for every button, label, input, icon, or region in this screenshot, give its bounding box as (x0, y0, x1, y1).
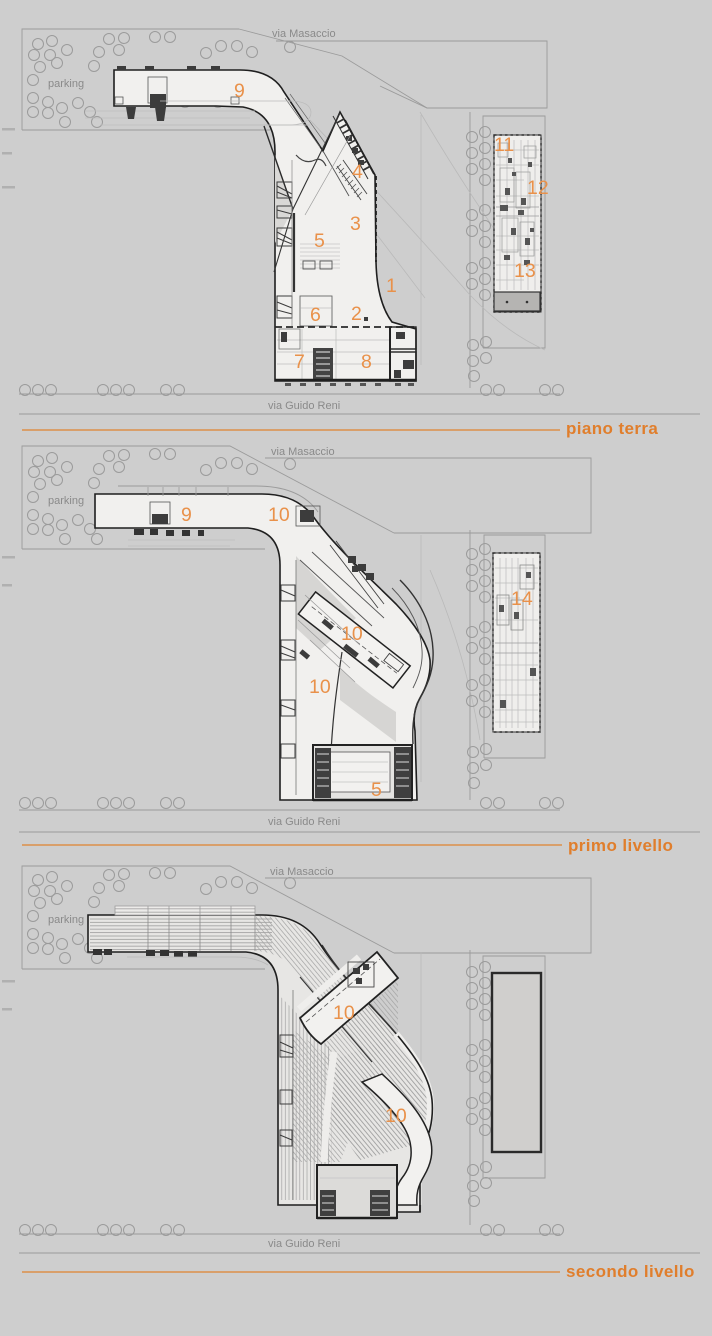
svg-text:via Masaccio: via Masaccio (272, 28, 336, 40)
svg-text:8: 8 (361, 351, 372, 373)
svg-text:2: 2 (351, 303, 362, 325)
svg-text:primo livello: primo livello (568, 836, 673, 855)
svg-text:9: 9 (181, 504, 192, 526)
svg-text:3: 3 (350, 213, 361, 235)
svg-text:via Guido Reni: via Guido Reni (268, 400, 340, 412)
svg-text:1: 1 (386, 275, 397, 297)
svg-text:via Guido Reni: via Guido Reni (268, 816, 340, 828)
svg-text:via Masaccio: via Masaccio (271, 446, 335, 458)
svg-text:5: 5 (314, 230, 325, 252)
svg-text:parking: parking (48, 914, 84, 926)
svg-text:10: 10 (268, 504, 290, 526)
svg-text:7: 7 (294, 351, 305, 373)
svg-text:9: 9 (234, 80, 245, 102)
svg-text:10: 10 (341, 623, 363, 645)
svg-text:5: 5 (371, 779, 382, 801)
svg-text:secondo livello: secondo livello (566, 1262, 695, 1281)
svg-text:via Masaccio: via Masaccio (270, 866, 334, 878)
svg-text:11: 11 (494, 134, 514, 156)
svg-text:via Guido Reni: via Guido Reni (268, 1238, 340, 1250)
svg-text:10: 10 (385, 1105, 407, 1127)
svg-text:piano terra: piano terra (566, 419, 658, 438)
svg-text:10: 10 (309, 676, 331, 698)
svg-text:6: 6 (310, 304, 321, 326)
svg-text:14: 14 (511, 588, 533, 610)
svg-text:12: 12 (527, 177, 549, 199)
svg-text:10: 10 (333, 1002, 355, 1024)
svg-text:parking: parking (48, 78, 84, 90)
svg-text:13: 13 (514, 260, 536, 282)
svg-text:parking: parking (48, 495, 84, 507)
svg-text:4: 4 (352, 161, 363, 183)
